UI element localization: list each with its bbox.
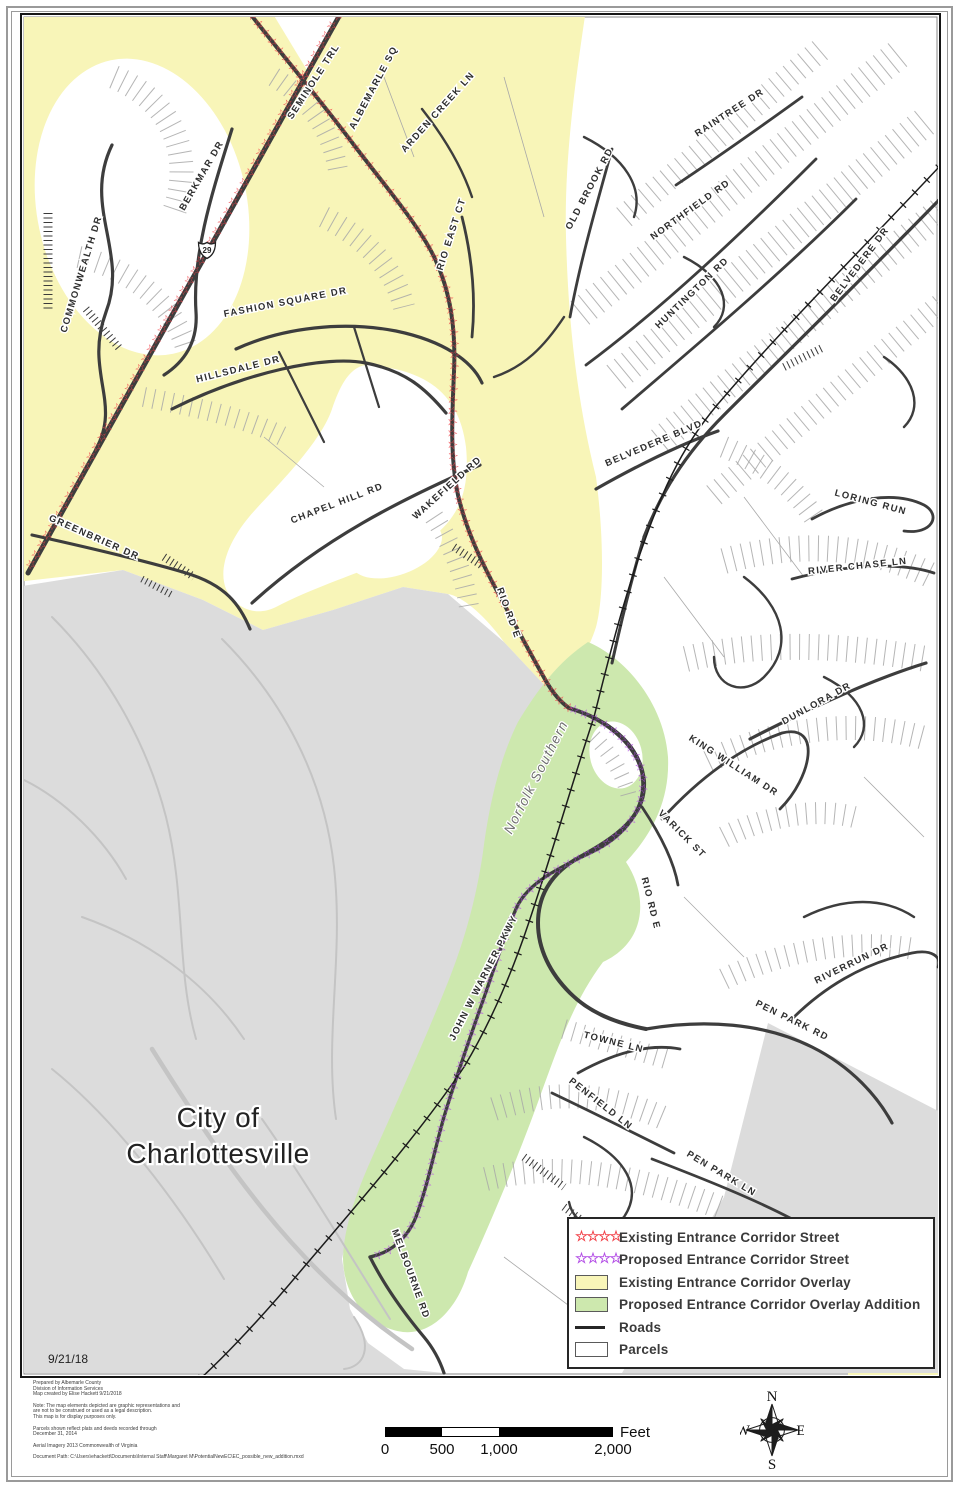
street-label-riverrun: RIVERRUN DR: [813, 941, 891, 987]
street-label-loring-run: LORING RUN: [833, 488, 907, 518]
red-stars-icon: ☆☆☆☆: [575, 1230, 621, 1245]
street-label-king-william: KING WILLIAM DR: [687, 733, 781, 799]
credit-imagery: Aerial Imagery 2013 Commonwealth of Virg…: [33, 1444, 363, 1450]
street-label-varick: VARICK ST: [656, 808, 708, 860]
purple-stars-icon: ☆☆☆☆: [575, 1252, 621, 1267]
street-label-belvedere-dr: BELVEDERE DR: [828, 225, 891, 304]
legend-label: Proposed Entrance Corridor Overlay Addit…: [619, 1297, 920, 1312]
legend-row-proposed-street: ☆☆☆☆ Proposed Entrance Corridor Street: [575, 1249, 925, 1271]
street-label-towne: TOWNE LN: [582, 1030, 645, 1056]
legend-row-roads: Roads: [575, 1316, 925, 1338]
scale-unit-label: Feet: [620, 1424, 650, 1441]
map-date: 9/21/18: [48, 1352, 88, 1366]
legend-row-existing-street: ☆☆☆☆ Existing Entrance Corridor Street: [575, 1226, 925, 1248]
scale-segment: [442, 1427, 499, 1437]
white-swatch-icon: [575, 1342, 608, 1357]
legend-row-parcels: Parcels: [575, 1339, 925, 1361]
compass-e: E: [796, 1423, 804, 1439]
green-swatch-icon: [575, 1297, 608, 1312]
legend: ☆☆☆☆ Existing Entrance Corridor Street ☆…: [567, 1217, 935, 1369]
legend-label: Roads: [619, 1320, 661, 1335]
legend-label: Parcels: [619, 1342, 668, 1357]
compass-w: W: [740, 1423, 751, 1439]
compass-rose-icon: N E S W: [740, 1388, 804, 1472]
svg-text:29: 29: [203, 246, 212, 255]
scale-segment: [499, 1427, 613, 1437]
svg-text:Charlottesville: Charlottesville: [126, 1138, 309, 1169]
compass-s: S: [768, 1457, 776, 1472]
legend-label: Proposed Entrance Corridor Street: [619, 1252, 849, 1267]
compass-n: N: [767, 1389, 778, 1405]
svg-text:City of: City of: [177, 1102, 260, 1133]
legend-row-existing-overlay: Existing Entrance Corridor Overlay: [575, 1271, 925, 1293]
map-credits: Prepared by Albemarle County Division of…: [33, 1381, 363, 1467]
map-canvas: ☆☆☆☆☆☆☆☆☆☆☆☆☆☆☆☆☆☆☆☆☆☆☆☆☆☆☆☆☆☆☆☆☆☆☆☆☆☆☆☆…: [24, 17, 938, 1375]
yellow-swatch-icon: [575, 1275, 608, 1290]
scale-tick-1000: 1,000: [480, 1441, 518, 1458]
scale-bar: [385, 1427, 613, 1437]
map-frame: ☆☆☆☆☆☆☆☆☆☆☆☆☆☆☆☆☆☆☆☆☆☆☆☆☆☆☆☆☆☆☆☆☆☆☆☆☆☆☆☆…: [20, 13, 941, 1378]
map-document-page: ☆☆☆☆☆☆☆☆☆☆☆☆☆☆☆☆☆☆☆☆☆☆☆☆☆☆☆☆☆☆☆☆☆☆☆☆☆☆☆☆…: [0, 0, 959, 1488]
credit-document-path: Document Path: C:\Users\ehackett\Documen…: [33, 1455, 363, 1461]
road-line-icon: [575, 1326, 605, 1329]
scale-segment: [385, 1427, 442, 1437]
credit-disclaimer: Note: The map elements depicted are grap…: [33, 1404, 363, 1421]
scale-tick-500: 500: [429, 1441, 454, 1458]
credit-prepared-by: Prepared by Albemarle County Division of…: [33, 1381, 363, 1398]
credit-parcels-note: Parcels shown reflect plats and deeds re…: [33, 1427, 363, 1438]
legend-label: Existing Entrance Corridor Overlay: [619, 1275, 851, 1290]
scale-tick-0: 0: [381, 1441, 389, 1458]
scale-tick-2000: 2,000: [594, 1441, 632, 1458]
street-label-old-brook: OLD BROOK RD: [564, 146, 617, 232]
legend-label: Existing Entrance Corridor Street: [619, 1230, 839, 1245]
street-label-river-chase: RIVER CHASE LN: [808, 556, 908, 577]
street-label-rio-rd-s: RIO RD E: [639, 876, 663, 931]
legend-row-proposed-overlay: Proposed Entrance Corridor Overlay Addit…: [575, 1294, 925, 1316]
